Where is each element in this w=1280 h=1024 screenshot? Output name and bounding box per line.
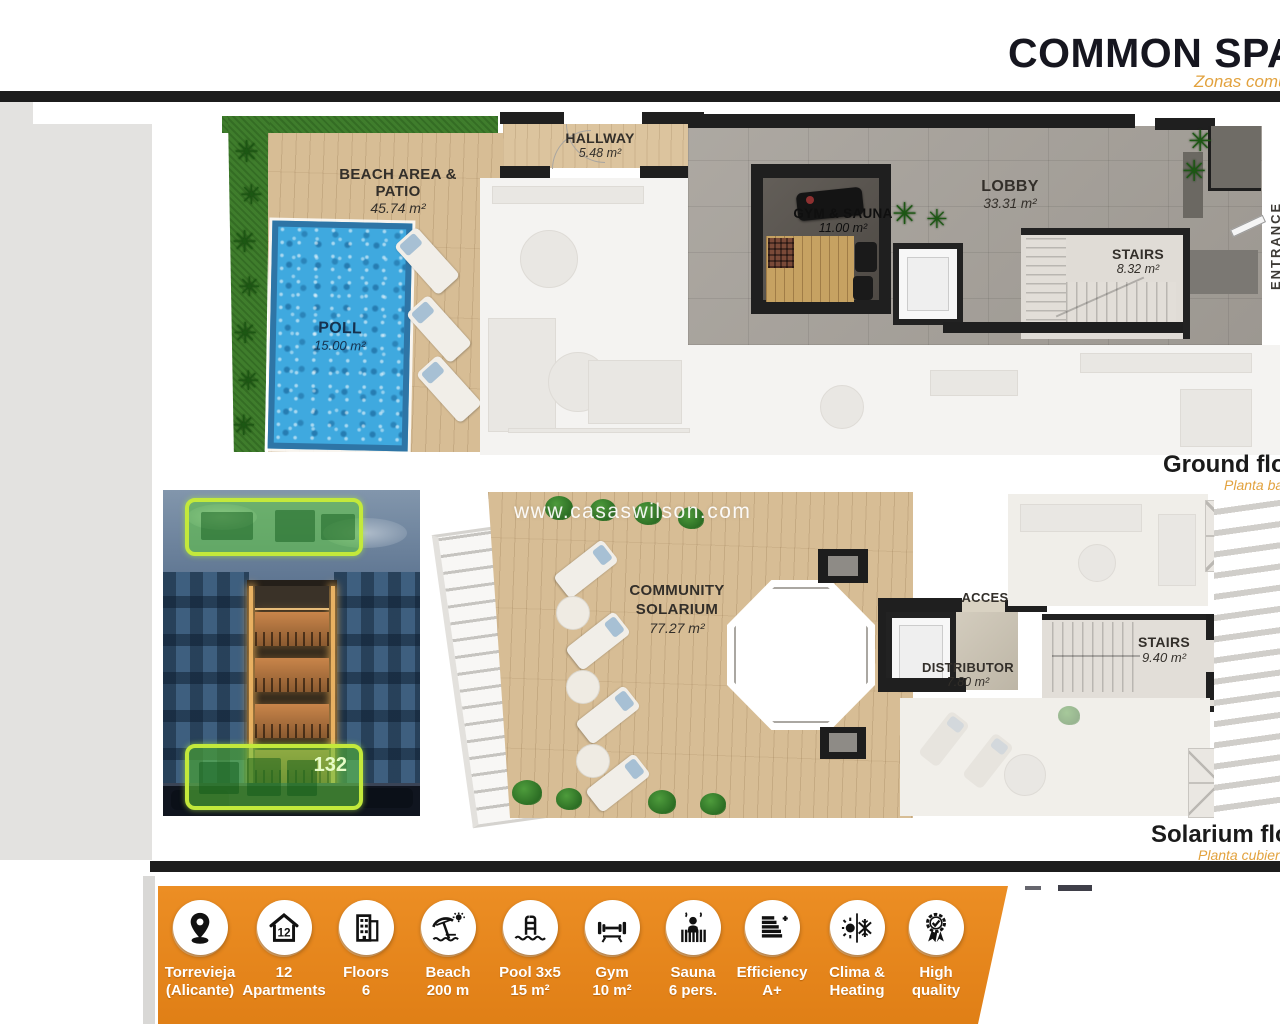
palm-icon: ✳ [233,320,257,349]
palm-icon: ✳ [1182,158,1206,187]
building-number-badge: 132 [314,754,347,777]
round-table [556,596,590,630]
ghost-furniture [1020,504,1142,532]
palm-icon: ✳ [234,138,259,168]
stair-treads [1052,622,1140,692]
beach-area-label: BEACH AREA & PATIO 45.74 m² [318,166,478,216]
palm-icon: ✳ [232,228,257,258]
wall [500,112,564,124]
roof-planter [818,549,868,583]
stairs-label: STAIRS 9.40 m² [1128,634,1200,665]
pool: POLL 15.00 m² [268,221,413,452]
sauna-stove [768,238,794,268]
gym-label: GYM & SAUNA 11.00 m² [790,206,896,235]
roof-slats [1214,494,1280,818]
street-strip [0,102,152,860]
wall [688,114,1135,128]
solarium-highlight-box [185,498,363,556]
entrance-mat [1178,250,1258,294]
distributor-label: DISTRIBUTOR 7.80 m² [916,660,1020,689]
ghost-bush [1058,706,1080,725]
ghost-wall-line [508,428,690,433]
street-notch [33,102,152,124]
ghost-furniture [820,385,864,429]
stair-landing-line [1052,655,1140,657]
ghost-furniture [1080,353,1252,373]
wall [1206,672,1214,700]
ghost-furniture [588,360,682,424]
faded-terrace-area [900,698,1210,816]
ghost-furniture [930,370,1018,396]
gym-barbell-icon [585,900,640,955]
page-title: COMMON SPACES [1008,30,1280,77]
ground-highlight-box: 132 [185,744,363,810]
ground-floor-title: Ground floor [1163,451,1280,479]
top-divider-bar [0,91,1280,102]
solarium-floor-title: Solarium floor [1151,821,1280,849]
photo-penthouse [255,586,329,610]
round-table [576,744,610,778]
roof-planter [820,727,866,759]
palm-icon: ✳ [232,412,255,440]
feature-line1: High [886,964,986,982]
wall [500,166,550,178]
feature-line2: quality [886,982,986,1000]
photo-window-row [255,704,329,738]
wall [1206,614,1214,640]
ghost-lounger [918,710,970,767]
street-sliver [143,876,155,1024]
bush [700,793,726,815]
round-table [566,670,600,704]
photo-window-row [255,612,329,646]
hallway-label: HALLWAY 5.48 m² [560,130,640,160]
building-photo: 132 [163,490,420,816]
page: COMMON SPACES Zonas comunes ✳ ✳ ✳ ✳ ✳ ✳ … [0,0,1280,1024]
lobby-label: LOBBY 33.31 m² [970,178,1050,211]
bush [512,780,542,805]
bush [556,788,582,810]
ghost-furniture [492,186,644,204]
ground-floor-subtitle: Planta baja [1224,477,1280,493]
gym-machine [853,276,873,300]
palm-icon: ✳ [926,206,948,232]
palm-icon: ✳ [238,274,261,301]
clima-heating-icon [830,900,885,955]
octagon-lightwell [727,580,875,730]
bush [648,790,676,814]
ghost-furniture [520,230,578,288]
ghost-furniture [1158,514,1196,586]
palm-icon: ✳ [237,368,260,395]
pool-name: POLL [314,319,366,338]
logo-mark [1058,885,1092,891]
watermark: www.casaswilson.com [514,500,751,524]
ghost-furniture [1180,389,1252,447]
faded-terrace-area [1008,494,1208,606]
solarium-label: COMMUNITY SOLARIUM 77.27 m² [607,582,747,636]
entrance-label: ENTRANCE [1268,172,1280,290]
svg-text:12: 12 [277,925,291,939]
elevator [893,243,963,325]
wall [943,322,1183,333]
efficiency-icon [745,900,800,955]
grass-left-band: ✳ ✳ ✳ ✳ ✳ ✳ ✳ [228,116,270,452]
beach-umbrella-icon [421,900,476,955]
quality-medal-icon [909,900,964,955]
location-pin-icon [173,900,228,955]
stairs-label: STAIRS 8.32 m² [1100,246,1176,276]
feature-quality: Highquality [886,900,986,999]
pool-area: 15.00 m² [314,337,366,353]
bottom-divider-bar [150,861,1280,872]
features-banner: Torrevieja(Alicante) 12 12Apartments Flo… [158,886,1010,1024]
ghost-furniture [1078,544,1116,582]
page-subtitle: Zonas comunes [1194,72,1280,92]
gym-machine [855,242,877,272]
photo-window-row [255,658,329,692]
treadmill-detail [806,196,814,204]
apartments-icon: 12 [257,900,312,955]
ghost-furniture [1004,754,1046,796]
pool-ladder-icon [503,900,558,955]
logo-mark [1025,886,1041,890]
sauna-icon [666,900,721,955]
entrance-closet [1208,126,1261,191]
ghost-furniture [488,318,556,432]
photo-car [359,788,413,808]
palm-icon: ✳ [240,182,263,209]
faded-apartment-area [760,345,1280,455]
palm-icon: ✳ [1188,128,1212,157]
wall [878,598,962,612]
building-floors-icon [339,900,394,955]
